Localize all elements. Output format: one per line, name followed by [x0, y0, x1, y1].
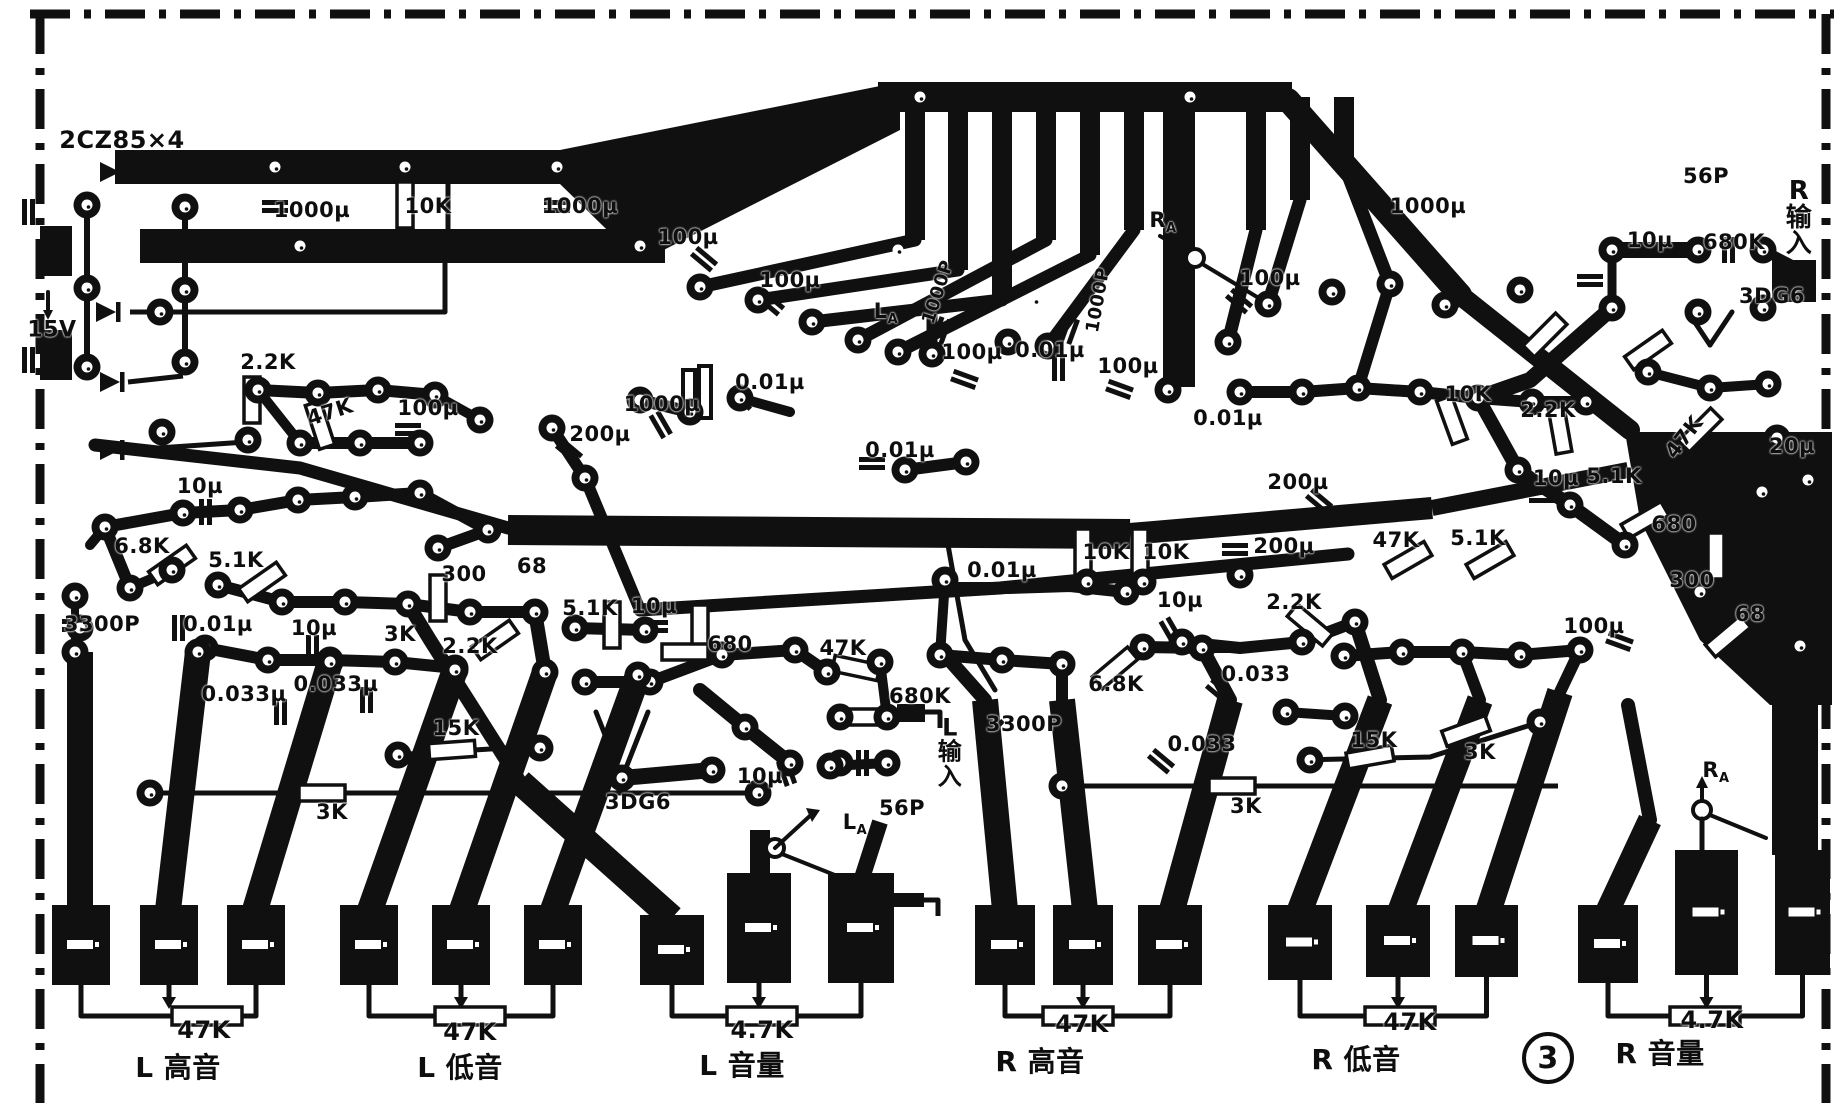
pad-dot — [378, 390, 382, 394]
trace — [128, 376, 183, 382]
pad-dot — [552, 428, 556, 432]
potentiometer-symbol — [1043, 1007, 1113, 1025]
resistor-symbol — [1466, 542, 1514, 579]
pad-hole — [635, 395, 646, 406]
pad-dot — [1570, 505, 1574, 509]
trace — [81, 985, 172, 1016]
pad-dot — [1540, 722, 1544, 726]
pad-hole — [433, 543, 444, 554]
resistor-symbol — [604, 602, 620, 648]
block-slot-notch — [1184, 942, 1188, 947]
resistor-symbol — [662, 644, 708, 660]
pad-dot — [945, 580, 949, 584]
pad-hole — [1043, 341, 1054, 352]
pad-dot — [932, 354, 936, 358]
pad-hole — [180, 202, 191, 213]
trace — [1268, 200, 1300, 304]
pad-dot — [830, 766, 834, 770]
pad-hole — [350, 492, 361, 503]
pad-dot — [1168, 390, 1172, 394]
pad-dot — [420, 493, 424, 497]
pad-dot — [240, 510, 244, 514]
pad-hole — [1565, 500, 1576, 511]
pad-dot — [405, 167, 409, 171]
pad-dot — [638, 675, 642, 679]
pad-hole — [1575, 645, 1586, 656]
block-slot-notch — [270, 942, 274, 947]
pad-dot — [650, 682, 654, 686]
pad-hole — [1513, 465, 1524, 476]
pad-dot — [1648, 372, 1652, 376]
pad-hole — [540, 667, 551, 678]
pad-hole — [1581, 397, 1592, 408]
capacitor-symbol — [172, 615, 185, 641]
capacitor-symbol — [262, 200, 288, 213]
pad-dot — [920, 97, 924, 101]
block-slot-notch — [95, 942, 99, 947]
pad-hole — [717, 650, 728, 661]
pad-dot — [1777, 438, 1781, 442]
pad-dot — [258, 390, 262, 394]
pad-dot — [420, 443, 424, 447]
block-slot — [1693, 908, 1719, 917]
pad-hole — [753, 295, 764, 306]
pad-hole — [1758, 303, 1769, 314]
pad-dot — [575, 628, 579, 632]
pad-dot — [712, 770, 716, 774]
pad-hole — [70, 591, 81, 602]
pad-dot — [185, 290, 189, 294]
block-slot — [1286, 938, 1312, 947]
pad-hole — [263, 655, 274, 666]
pad-dot — [1518, 470, 1522, 474]
pad-dot — [1768, 384, 1772, 388]
pad-dot — [812, 322, 816, 326]
pad-dot — [150, 793, 154, 797]
pad-hole — [935, 650, 946, 661]
trace — [242, 985, 256, 1016]
pad-dot — [740, 398, 744, 402]
trace — [258, 390, 435, 395]
pad-hole — [1057, 781, 1068, 792]
pad-dot — [1344, 656, 1348, 660]
pad-hole — [580, 677, 591, 688]
pad-dot — [185, 207, 189, 211]
capacitor-symbol — [360, 687, 373, 713]
pad-hole — [1339, 651, 1350, 662]
resistor-symbol — [299, 785, 345, 801]
pad-dot — [1612, 308, 1616, 312]
pad-hole — [180, 357, 191, 368]
pad-dot — [790, 763, 794, 767]
pad-hole — [475, 415, 486, 426]
pad-hole — [707, 765, 718, 776]
block-slot — [539, 940, 565, 949]
pad-hole — [1185, 92, 1196, 103]
pad-hole — [82, 283, 93, 294]
pad-hole — [1235, 570, 1246, 581]
pad-hole — [1305, 755, 1316, 766]
block-slot — [1156, 940, 1182, 949]
pad-dot — [745, 727, 749, 731]
capacitor-symbol — [22, 347, 35, 373]
trace — [1710, 312, 1732, 345]
r-input-tab — [1772, 260, 1816, 302]
pad-dot — [722, 655, 726, 659]
block-slot — [155, 940, 181, 949]
pad-hole — [633, 670, 644, 681]
pad-dot — [330, 662, 334, 666]
pad-hole — [243, 435, 254, 446]
potentiometer-symbol — [435, 1007, 505, 1025]
resistor-symbol — [1708, 533, 1724, 579]
pad-dot — [1008, 342, 1012, 346]
resistor-symbol — [472, 620, 519, 659]
pad-hole — [1340, 711, 1351, 722]
pad-dot — [622, 778, 626, 782]
trace — [1710, 815, 1766, 838]
pad-hole — [82, 200, 93, 211]
pad-hole — [893, 245, 904, 256]
trace — [505, 985, 553, 1016]
resistor-symbol — [430, 575, 446, 621]
block-slot — [658, 945, 684, 954]
pad-hole — [270, 162, 281, 173]
block-slot-notch — [1622, 941, 1626, 946]
pad-hole — [900, 465, 911, 476]
pad-dot — [1462, 652, 1466, 656]
pad-dot — [160, 312, 164, 316]
pad-hole — [552, 162, 563, 173]
pad-hole — [157, 427, 168, 438]
pad-hole — [617, 773, 628, 784]
trace — [1172, 700, 1230, 910]
pad-dot — [1240, 392, 1244, 396]
resistor-symbol — [1437, 396, 1468, 445]
pad-hole — [997, 655, 1008, 666]
pad-hole — [70, 647, 81, 658]
capacitor-symbol — [1222, 543, 1248, 556]
pad-hole — [580, 473, 591, 484]
pad-hole — [1693, 307, 1704, 318]
pad-dot — [1080, 345, 1084, 349]
resistor-symbol — [1209, 778, 1255, 794]
pad-dot — [75, 652, 79, 656]
pad-dot — [87, 205, 91, 209]
pad-dot — [198, 652, 202, 656]
pad-dot — [470, 612, 474, 616]
capacitor-symbol — [274, 699, 287, 725]
pad-hole — [390, 657, 401, 668]
pad-hole — [635, 241, 646, 252]
capacitor-symbol — [1722, 237, 1735, 263]
pad-hole — [1263, 299, 1274, 310]
pad-hole — [790, 645, 801, 656]
pad-dot — [1143, 582, 1147, 586]
trace — [1204, 265, 1262, 300]
trace — [925, 712, 940, 728]
pad-dot — [87, 288, 91, 292]
pad-dot — [105, 527, 109, 531]
pad-dot — [1345, 716, 1349, 720]
pad-dot — [898, 352, 902, 356]
pad-dot — [1202, 648, 1206, 652]
trace — [1740, 975, 1803, 1016]
pad-dot — [480, 420, 484, 424]
pad-hole — [1121, 587, 1132, 598]
pad-dot — [1762, 492, 1766, 496]
pad-dot — [1002, 660, 1006, 664]
pad-hole — [415, 438, 426, 449]
pad-dot — [966, 462, 970, 466]
block-slot-notch — [1501, 938, 1505, 943]
pad-hole — [373, 385, 384, 396]
pad-dot — [318, 393, 322, 397]
trace — [775, 814, 812, 848]
pad-dot — [185, 362, 189, 366]
pad-dot — [1286, 712, 1290, 716]
trace — [1300, 700, 1380, 910]
block-slot-notch — [686, 947, 690, 952]
trace — [369, 985, 435, 1016]
trace — [1435, 977, 1487, 1016]
pad-hole — [1607, 245, 1618, 256]
pad-dot — [1710, 388, 1714, 392]
block-side-tab — [894, 893, 924, 907]
potentiometer-symbol — [172, 1007, 242, 1025]
diode-symbol — [100, 372, 125, 392]
trace — [1628, 705, 1650, 820]
pad-hole — [695, 282, 706, 293]
pad-dot — [1586, 402, 1590, 406]
pcb-layout-figure: 2CZ85×415V1000µ10K1000µ100µ100µLA1000P10… — [0, 0, 1847, 1103]
pad-dot — [268, 660, 272, 664]
pad-hole — [1457, 647, 1468, 658]
block-slot — [847, 923, 873, 932]
pad-hole — [430, 390, 441, 401]
right-vertical-bus — [1772, 640, 1818, 855]
supply-tab — [40, 226, 72, 276]
pad-hole — [180, 285, 191, 296]
capacitor-symbol — [1147, 748, 1175, 775]
resistor-symbol — [1548, 406, 1572, 454]
pad-dot — [1763, 250, 1767, 254]
block-slot-notch — [1314, 940, 1318, 945]
pad-hole — [785, 758, 796, 769]
pad-hole — [1138, 577, 1149, 588]
pad-hole — [822, 667, 833, 678]
pad-hole — [393, 750, 404, 761]
resistor-symbol — [428, 740, 475, 759]
pad-dot — [298, 500, 302, 504]
resistor-symbol — [1075, 529, 1091, 575]
pad-dot — [1532, 402, 1536, 406]
pad-dot — [435, 395, 439, 399]
pad-hole — [277, 597, 288, 608]
pad-hole — [685, 407, 696, 418]
pad-dot — [1698, 312, 1702, 316]
pad-hole — [1075, 340, 1086, 351]
pad-hole — [1695, 587, 1706, 598]
pad-dot — [1268, 304, 1272, 308]
trimmer-wiper — [1693, 801, 1711, 819]
pad-dot — [1310, 760, 1314, 764]
pad-hole — [1758, 245, 1769, 256]
block-slot — [1789, 908, 1815, 917]
pad-dot — [887, 763, 891, 767]
trace — [370, 670, 455, 910]
pad-hole — [547, 423, 558, 434]
pad-dot — [80, 628, 84, 632]
pad-hole — [882, 758, 893, 769]
block-slot — [1594, 939, 1620, 948]
pad-dot — [275, 167, 279, 171]
pad-dot — [408, 604, 412, 608]
l-input-tab — [897, 704, 925, 722]
pad-dot — [840, 717, 844, 721]
trimmer-wiper — [1186, 249, 1204, 267]
pad-dot — [1358, 388, 1362, 392]
trace — [1130, 508, 1432, 534]
block-slot — [1473, 936, 1499, 945]
pad-hole — [1607, 303, 1618, 314]
pad-hole — [167, 565, 178, 576]
pad-dot — [557, 167, 561, 171]
block-slot — [991, 940, 1017, 949]
block-slot — [1384, 936, 1410, 945]
pad-hole — [1795, 641, 1806, 652]
block-slot-notch — [1412, 938, 1416, 943]
trace — [1300, 980, 1365, 1016]
pad-hole — [1473, 393, 1484, 404]
pad-hole — [1643, 367, 1654, 378]
pad-dot — [488, 530, 492, 534]
capacitor-symbol — [1052, 355, 1065, 381]
pad-dot — [248, 440, 252, 444]
pad-hole — [295, 241, 306, 252]
trace — [1288, 100, 1460, 295]
resistor-symbol — [1092, 647, 1138, 689]
pad-hole — [1620, 540, 1631, 551]
capacitor-symbol — [1605, 631, 1634, 652]
block-slot-notch — [383, 942, 387, 947]
pad-hole — [82, 362, 93, 373]
pad-dot — [1700, 592, 1704, 596]
pad-hole — [1003, 337, 1014, 348]
pad-dot — [183, 513, 187, 517]
pad-dot — [1048, 346, 1052, 350]
pad-hole — [155, 307, 166, 318]
pad-dot — [905, 470, 909, 474]
block-slot — [447, 940, 473, 949]
block-slot — [67, 940, 93, 949]
pad-hole — [415, 488, 426, 499]
trace — [1608, 820, 1650, 910]
pad-hole — [875, 657, 886, 668]
resistor-symbol — [1132, 529, 1148, 575]
pad-dot — [1302, 392, 1306, 396]
pad-dot — [940, 655, 944, 659]
pad-dot — [1302, 642, 1306, 646]
pad-dot — [640, 400, 644, 404]
trace — [1062, 700, 1085, 910]
pad-hole — [961, 457, 972, 468]
pad-dot — [640, 246, 644, 250]
pad-hole — [1057, 659, 1068, 670]
pad-dot — [1625, 545, 1629, 549]
pad-hole — [295, 438, 306, 449]
pad-hole — [1385, 279, 1396, 290]
pad-hole — [340, 597, 351, 608]
pad-dot — [1240, 575, 1244, 579]
pad-hole — [465, 607, 476, 618]
block-slot-notch — [1817, 910, 1821, 915]
pad-dot — [398, 755, 402, 759]
pad-hole — [1535, 717, 1546, 728]
potentiometer-symbol — [727, 1007, 797, 1025]
trace — [1300, 722, 1540, 760]
pad-hole — [1527, 397, 1538, 408]
block-slot-notch — [773, 925, 777, 930]
pad-hole — [740, 722, 751, 733]
trace — [1113, 985, 1170, 1016]
pad-hole — [825, 761, 836, 772]
trace — [1608, 983, 1670, 1016]
pad-dot — [585, 478, 589, 482]
potentiometer-symbol — [1365, 1007, 1435, 1025]
capacitor-symbol — [544, 200, 570, 213]
block-slot — [1069, 940, 1095, 949]
pad-dot — [130, 588, 134, 592]
pad-dot — [1763, 308, 1767, 312]
pad-hole — [1515, 285, 1526, 296]
potentiometer-symbol — [1670, 1007, 1740, 1025]
trace — [924, 900, 938, 916]
pad-hole — [235, 505, 246, 516]
pad-hole — [1297, 387, 1308, 398]
pad-hole — [530, 607, 541, 618]
pad-dot — [282, 602, 286, 606]
pad-hole — [835, 712, 846, 723]
pad-dot — [1402, 652, 1406, 656]
pad-dot — [162, 432, 166, 436]
block-slot-notch — [475, 942, 479, 947]
pad-dot — [87, 367, 91, 371]
pad-hole — [1757, 487, 1768, 498]
pad-hole — [293, 495, 304, 506]
pad-dot — [1332, 292, 1336, 296]
trace — [797, 983, 861, 1016]
resistor-symbol — [397, 182, 413, 228]
pad-dot — [1612, 250, 1616, 254]
pad-hole — [1693, 245, 1704, 256]
pad-dot — [700, 287, 704, 291]
pad-dot — [1190, 97, 1194, 101]
pad-hole — [1705, 383, 1716, 394]
pad-hole — [1772, 433, 1783, 444]
pad-hole — [1353, 383, 1364, 394]
block-slot — [242, 940, 268, 949]
pad-dot — [827, 672, 831, 676]
pad-dot — [300, 246, 304, 250]
trace — [1005, 985, 1043, 1016]
pad-dot — [355, 497, 359, 501]
pad-hole — [1235, 387, 1246, 398]
pad-dot — [1126, 592, 1130, 596]
block-slot-notch — [1721, 910, 1725, 915]
pad-hole — [570, 623, 581, 634]
pad-hole — [1197, 643, 1208, 654]
